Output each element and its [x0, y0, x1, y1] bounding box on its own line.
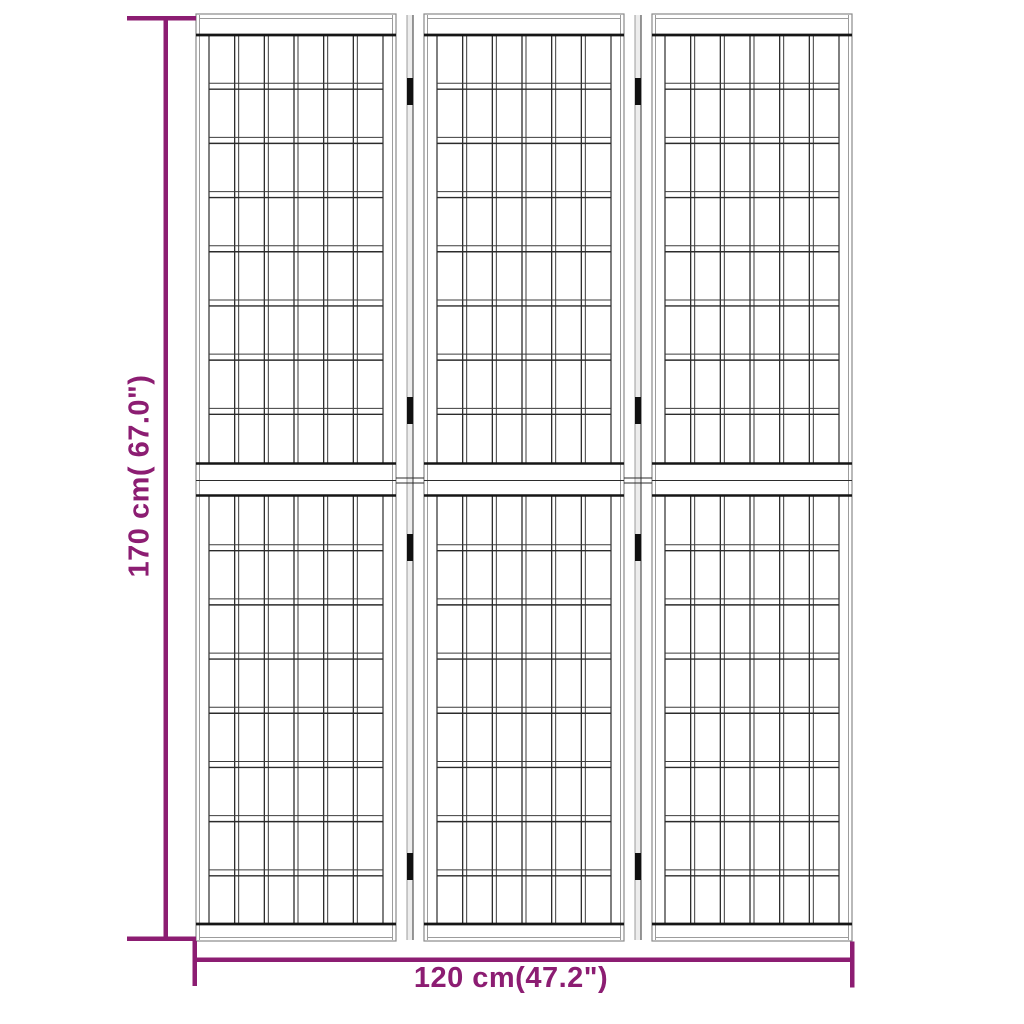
hinge — [635, 397, 641, 424]
hinge — [407, 78, 413, 105]
hinge — [635, 78, 641, 105]
hinge — [635, 853, 641, 880]
screen-panel — [652, 14, 852, 941]
height-dimension-label: 170 cm( 67.0") — [126, 375, 155, 578]
hinge-strip — [396, 15, 424, 940]
hinge — [407, 853, 413, 880]
hinge — [407, 534, 413, 561]
width-dimension-label: 120 cm(47.2") — [414, 964, 608, 993]
screen-panel — [424, 14, 624, 941]
product-dimension-diagram: 170 cm( 67.0") 120 cm(47.2") — [0, 0, 1024, 1024]
hinge-strip — [624, 15, 652, 940]
hinge — [635, 534, 641, 561]
screen-panel — [196, 14, 396, 941]
hinge — [407, 397, 413, 424]
